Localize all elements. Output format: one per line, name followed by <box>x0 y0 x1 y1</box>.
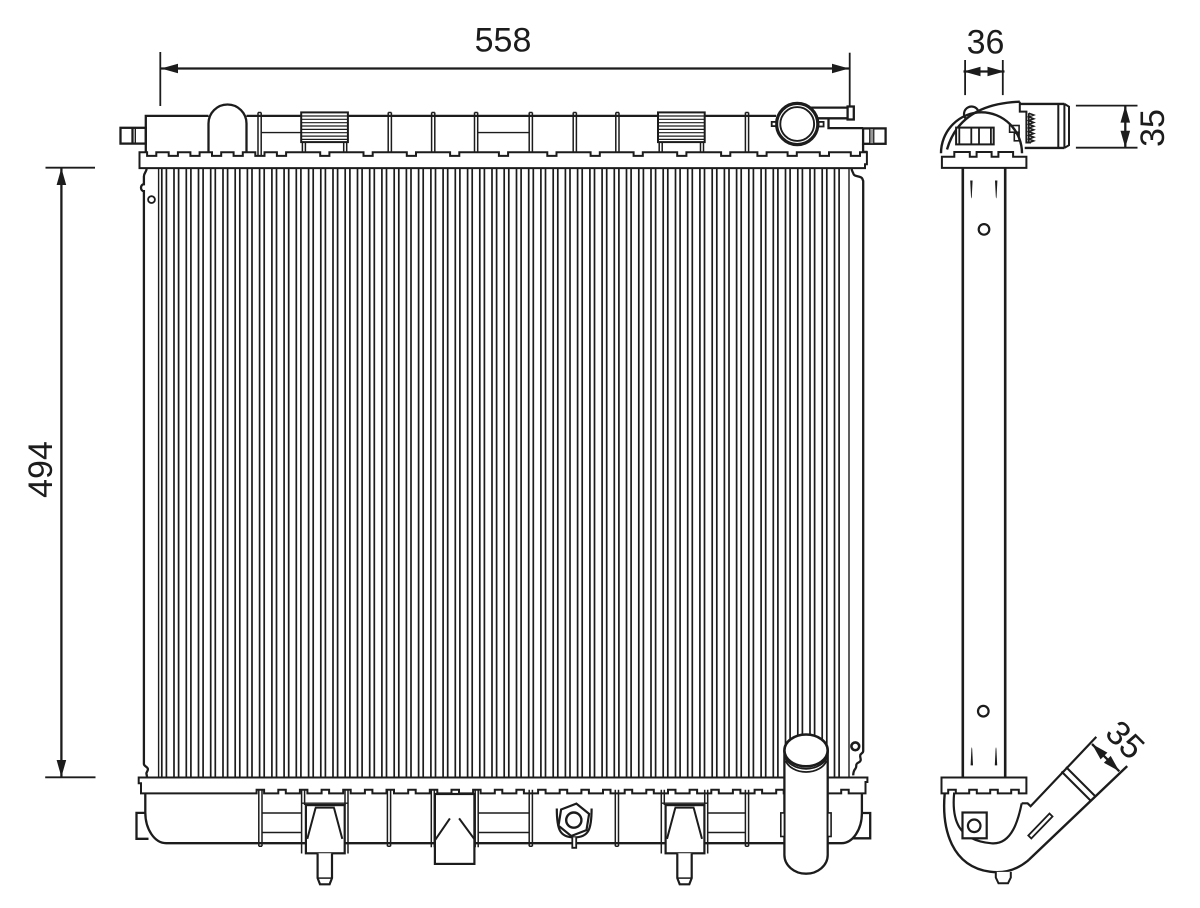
svg-text:558: 558 <box>475 22 532 60</box>
svg-text:36: 36 <box>967 24 1005 62</box>
svg-text:494: 494 <box>22 441 60 498</box>
svg-text:35: 35 <box>1134 109 1172 147</box>
